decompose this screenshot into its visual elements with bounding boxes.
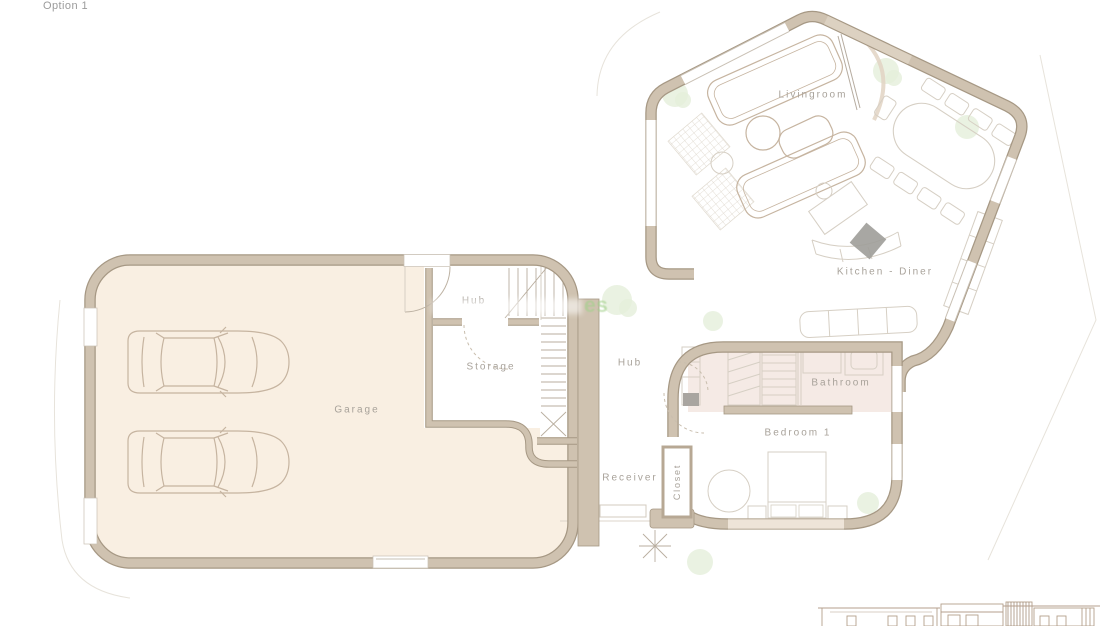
bed-icon [768,452,826,518]
floorplan-canvas: Option 1 Garage Hub Storage Livingroom K… [0,0,1110,626]
hub-storage-floor [424,266,568,437]
room-label-kitchen-diner: Kitchen - Diner [837,267,933,278]
watermark-band [432,299,582,314]
room-label-hub-lower: Hub [618,358,642,369]
plant-icon [857,492,879,514]
watermark: es [584,294,608,318]
lounge-chair-icon [746,116,780,150]
option-title: Option 1 [43,0,88,12]
room-label-livingroom: Livingroom [779,90,848,101]
stairwell-wall [578,299,599,546]
plant-icon [687,549,713,575]
entry-step [600,505,646,517]
kitchen-island-icon [809,182,901,262]
bathroom-divider-wall [724,406,852,414]
plants [602,58,979,575]
room-label-bathroom: Bathroom [811,378,870,389]
room-label-closet: Closet [672,464,682,500]
plant-icon [703,311,723,331]
sofa-icon [732,128,869,223]
room-label-receiver: Receiver [602,473,657,484]
room-label-bedroom-1: Bedroom 1 [765,428,832,439]
kitchen-diner-furniture [799,63,1016,338]
room-label-storage: Storage [466,362,515,373]
sofa-icon [703,30,847,129]
rug-icon [692,168,754,230]
room-label-garage: Garage [334,405,379,416]
round-chair-icon [708,470,750,512]
palm-plant-icon [639,530,671,562]
kitchen-bench-icon [799,306,917,338]
livingroom-furniture [668,30,883,230]
elevation-drawing [818,602,1100,626]
